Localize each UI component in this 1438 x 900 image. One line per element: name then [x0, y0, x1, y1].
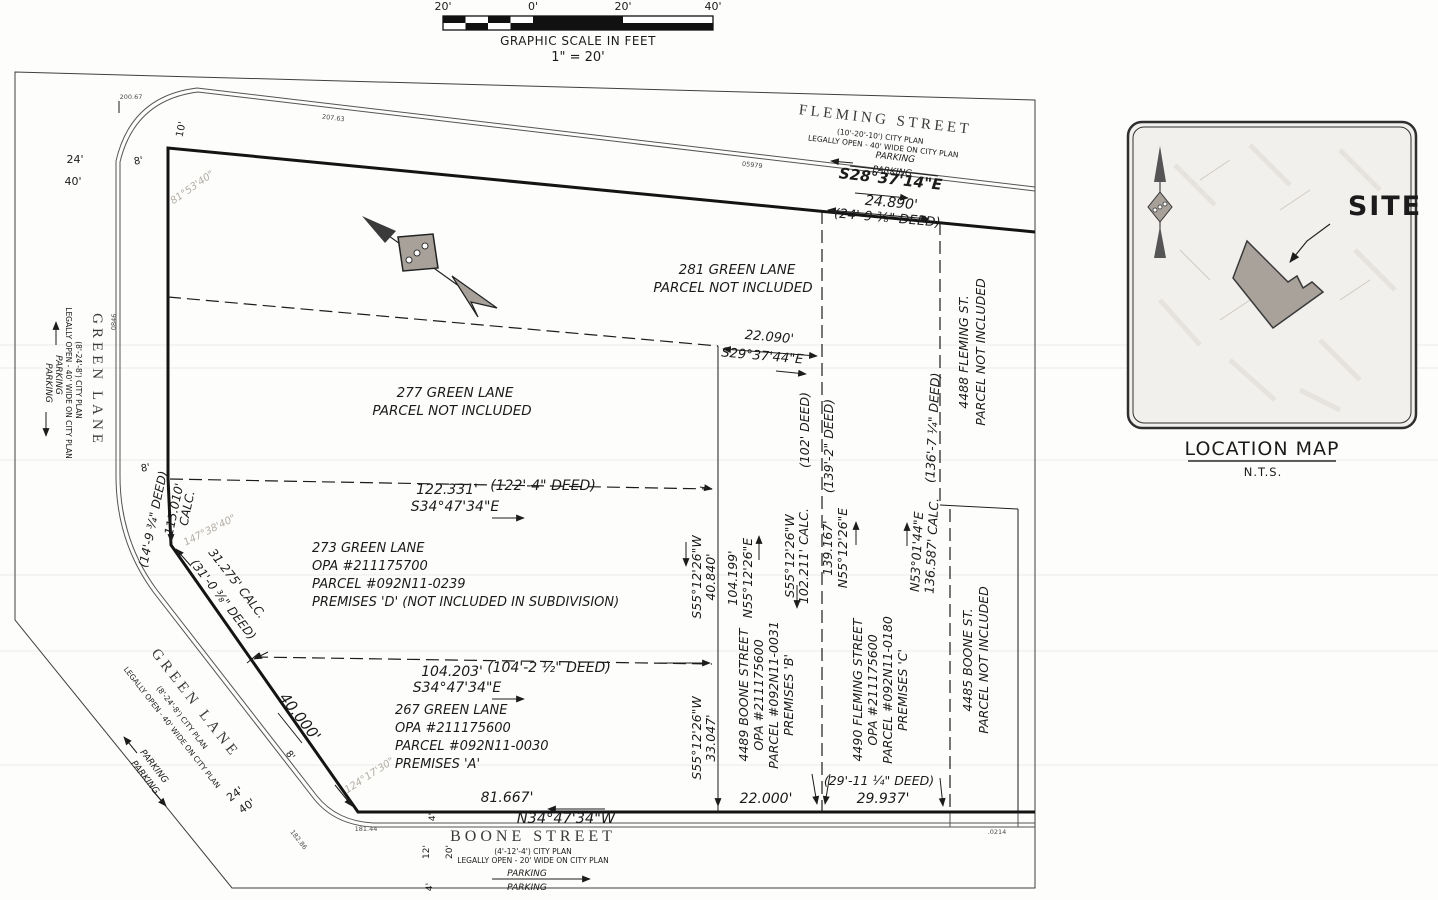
angle-815340: 81°53'40": [169, 169, 217, 207]
scale-tick-40: 40': [704, 0, 721, 13]
boone-parking-1: PARKING: [507, 869, 547, 879]
green-lane-west-parking-2: PARKING: [43, 363, 53, 403]
bearing-n551226e-2: N55°12'26"E: [835, 508, 850, 589]
parcel-line-281-south: [168, 297, 718, 346]
dim-33047: 33.047': [703, 714, 718, 761]
edge-12ft: 12': [422, 845, 432, 859]
scale-tick-20-right: 20': [614, 0, 631, 13]
edge-4ft-bottom: 4': [425, 883, 435, 891]
boone-open: LEGALLY OPEN - 20' WIDE ON CITY PLAN: [457, 856, 608, 865]
parcel-273-line4: PREMISES 'D' (NOT INCLUDED IN SUBDIVISIO…: [312, 595, 619, 610]
boone-parking-2: PARKING: [507, 883, 547, 893]
bearing-s551226w-1: S55°12'26"W: [689, 535, 704, 619]
parcel-line-104: [255, 657, 712, 664]
scale-title: GRAPHIC SCALE IN FEET: [500, 34, 656, 48]
dim-40840: 40.840': [703, 553, 718, 600]
parcel-4489-line4: PREMISES 'B': [781, 654, 796, 736]
dim-29937-deed: (29'-11 ¼" DEED): [824, 773, 934, 788]
bearing-s344734e-2: S34°47'34"E: [413, 680, 502, 696]
scale-tick-20-left: 20': [434, 0, 451, 13]
station-18144: 181.44: [355, 825, 378, 833]
boone-street-labels: BOONE STREET (4'-12'-4') CITY PLAN LEGAL…: [422, 773, 934, 893]
dim-24890-deed: (24'-9 ⅜" DEED): [834, 206, 941, 230]
dim-139-deed: (139'-2" DEED): [821, 399, 836, 493]
parcel-4489-line1: 4489 BOONE STREET: [736, 627, 751, 761]
north-arrow: [362, 216, 497, 317]
parcel-4485-line2: PARCEL NOT INCLUDED: [976, 586, 991, 734]
dim-22090: 22.090': [744, 328, 794, 347]
scale-bar-blocks: [443, 16, 713, 30]
green-lane-west-name: GREEN LANE: [89, 313, 105, 447]
green-lane-west-open: LEGALLY OPEN - 40' WIDE ON CITY PLAN: [64, 307, 73, 458]
parcel-277-line1: 277 GREEN LANE: [397, 385, 514, 401]
dim-122331: 122.331': [416, 482, 478, 498]
parcel-267-line3: PARCEL #092N11-0030: [395, 739, 549, 754]
station-20067: 200.67: [120, 93, 143, 101]
bearing-s551226w-2: S55°12'26"W: [782, 514, 797, 598]
dim-81667: 81.667': [481, 790, 534, 806]
dim-136587: 136.587' CALC.: [922, 497, 942, 594]
boone-bearing: N34°47'34"W: [517, 811, 616, 827]
dim-102211: 102.211' CALC.: [796, 508, 811, 604]
station-20763: 207.63: [321, 113, 345, 124]
dim-122-deed: (122'-4" DEED): [490, 478, 596, 494]
angle-1241730: 124°17'30": [343, 756, 397, 796]
edge-4ft-top: 4': [428, 813, 438, 821]
parcel-267-line2: OPA #211175600: [395, 721, 511, 736]
site-label: SITE: [1348, 191, 1422, 222]
dim-22000: 22.000': [740, 791, 793, 807]
boone-plan: (4'-12'-4') CITY PLAN: [494, 847, 572, 856]
bearing-s293744e: S29°37'44"E: [721, 345, 805, 367]
scale-tick-0: 0': [528, 0, 538, 13]
scale-ratio: 1" = 20': [551, 50, 605, 65]
dim-104-deed: (104'-2 ½" DEED): [487, 660, 611, 676]
edge-24ft-top: 24': [66, 153, 83, 166]
parcel-4485-line1: 4485 BOONE ST.: [960, 608, 975, 711]
location-map-title: LOCATION MAP: [1185, 438, 1340, 460]
parcel-267-line4: PREMISES 'A': [395, 757, 480, 772]
parcel-jog-line: [940, 505, 1018, 509]
graphic-scale-bar: 20' 0' 20' 40' GRAPHIC SCALE IN FEET 1" …: [434, 0, 721, 65]
parcel-4489-line3: PARCEL #092N11-0031: [766, 621, 781, 769]
parcel-281-line2: PARCEL NOT INCLUDED: [653, 280, 812, 296]
edge-8ft-top: 8': [133, 155, 144, 167]
edge-10ft: 10': [175, 121, 189, 138]
parcel-4490-line2: OPA #211175600: [865, 634, 880, 745]
edge-40ft-top: 40': [64, 175, 81, 188]
north-arrow-tail-icon: [452, 276, 497, 317]
location-map: SITE LOCATION MAP N.T.S.: [1128, 122, 1422, 479]
station-05979: 05979: [741, 160, 763, 170]
bearing-n551226e-1: N55°12'26"E: [740, 538, 755, 619]
bearing-s344734e-1: S34°47'34"E: [411, 499, 500, 515]
station-18286: 182.86: [288, 828, 308, 851]
dim-136-deed: (136'-7 ¼" DEED): [922, 372, 943, 483]
edge-8ft-mid: 8': [140, 462, 151, 474]
parcel-4488-line2: PARCEL NOT INCLUDED: [973, 278, 988, 426]
parcel-4490-line4: PREMISES 'C': [895, 649, 910, 731]
parcel-267-line1: 267 GREEN LANE: [395, 703, 508, 718]
bearing-s551226w-3: S55°12'26"W: [689, 696, 704, 780]
dim-40000: 40.000': [275, 689, 324, 745]
parcel-277-line2: PARCEL NOT INCLUDED: [372, 403, 531, 419]
green-lane-south-labels: GREEN LANE (8'-24'-8') CITY PLAN LEGALLY…: [122, 646, 243, 797]
dim-102-deed: (102' DEED): [797, 392, 812, 468]
green-lane-west-plan: (8'-24'-8') CITY PLAN: [74, 341, 83, 419]
parcel-4490-line1: 4490 FLEMING STREET: [850, 617, 865, 761]
parcel-4488-line1: 4488 FLEMING ST.: [956, 295, 971, 408]
green-lane-south-name: GREEN LANE: [148, 646, 243, 761]
north-arrow-head-icon: [362, 216, 396, 243]
survey-plat-drawing: 20' 0' 20' 40' GRAPHIC SCALE IN FEET 1" …: [0, 0, 1438, 900]
dim-29937: 29.937': [857, 791, 910, 807]
edge-8ft-diag: 8': [283, 749, 297, 763]
parcel-281-line1: 281 GREEN LANE: [679, 262, 796, 278]
dim-104199: 104.199': [725, 550, 740, 605]
station-0846: 0846: [110, 314, 119, 331]
green-lane-west-parking-1: PARKING: [53, 355, 63, 395]
parcel-273-line1: 273 GREEN LANE: [312, 541, 425, 556]
green-lane-west-labels: GREEN LANE (8'-24'-8') CITY PLAN LEGALLY…: [43, 307, 105, 458]
location-map-nts: N.T.S.: [1244, 465, 1283, 479]
parcel-4490-line3: PARCEL #092N11-0180: [880, 616, 895, 764]
dim-139167: 139.167': [820, 520, 835, 575]
parcel-273-line3: PARCEL #092N11-0239: [312, 577, 466, 592]
parcel-273-line2: OPA #211175700: [312, 559, 428, 574]
plat-sheet: 20' 0' 20' 40' GRAPHIC SCALE IN FEET 1" …: [0, 0, 1438, 900]
boone-street-name: BOONE STREET: [450, 828, 616, 845]
edge-20ft: 20': [445, 845, 455, 859]
edge-40ft-bottom: 40': [236, 796, 257, 816]
station-0214: .0214: [988, 828, 1007, 836]
parcel-4489-line2: OPA #211175600: [751, 639, 766, 750]
dim-104203: 104.203': [421, 664, 483, 680]
